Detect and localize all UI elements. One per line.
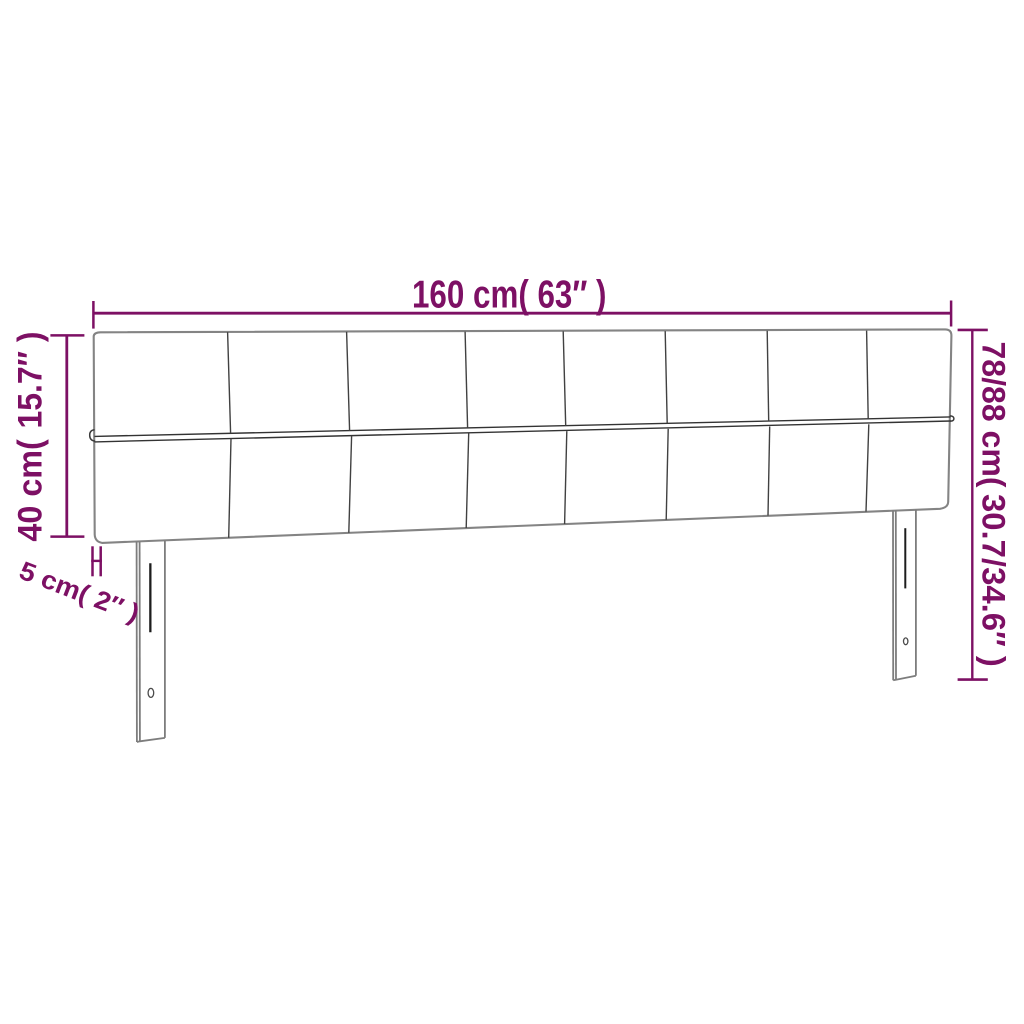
- svg-text:78/88 cm(: 78/88 cm(: [976, 342, 1012, 488]
- svg-text:160 cm( 63″ ): 160 cm( 63″ ): [412, 274, 607, 317]
- svg-text:40 cm(: 40 cm(: [12, 439, 50, 542]
- svg-text:30.7/34.6″ ): 30.7/34.6″ ): [976, 494, 1012, 667]
- svg-text:15.7″ ): 15.7″ ): [12, 332, 50, 429]
